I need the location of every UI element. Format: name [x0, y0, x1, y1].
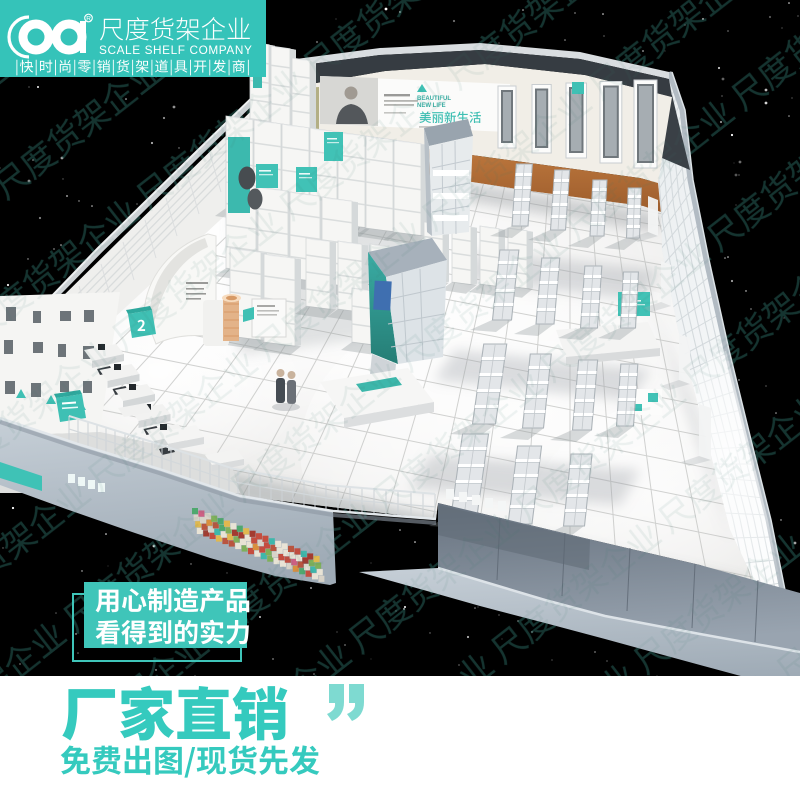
svg-text:R: R [86, 16, 91, 23]
